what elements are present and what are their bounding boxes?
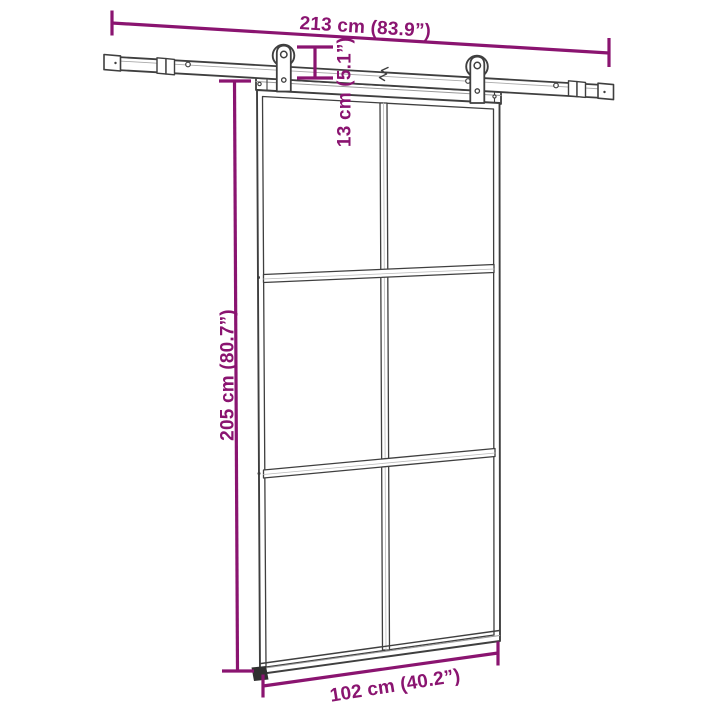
wheel-hub-bolt bbox=[281, 51, 287, 57]
hanger-drop-label: 13 cm (5.1”) bbox=[335, 37, 356, 147]
dimension-diagram: 213 cm (83.9”) 13 cm (5.1”) 205 cm (80.7… bbox=[0, 0, 720, 720]
rail-end-cap-right bbox=[598, 83, 614, 99]
rail-screw bbox=[186, 62, 191, 67]
stile-screw bbox=[257, 276, 260, 279]
stile-screw bbox=[258, 472, 261, 475]
door-outer-frame bbox=[257, 90, 500, 674]
rail-coupler-left bbox=[157, 58, 175, 75]
strap-bolt bbox=[282, 78, 286, 82]
strap-bolt bbox=[475, 89, 479, 93]
channel-bolt bbox=[493, 95, 496, 98]
channel-bolt bbox=[258, 82, 261, 85]
right-roller-hanger bbox=[466, 56, 488, 103]
rail-screw bbox=[554, 83, 559, 88]
door-height-label: 205 cm (80.7”) bbox=[218, 309, 239, 441]
wheel-hub-bolt bbox=[474, 62, 480, 68]
door bbox=[252, 78, 502, 681]
rail-length-label: 213 cm (83.9”) bbox=[299, 13, 432, 42]
floor-guide bbox=[252, 666, 269, 681]
left-roller-hanger bbox=[273, 45, 295, 92]
rail-end-cap-left bbox=[104, 55, 121, 72]
diagram-canvas: 213 cm (83.9”) 13 cm (5.1”) 205 cm (80.7… bbox=[0, 0, 720, 720]
rail-coupler-right bbox=[569, 81, 586, 98]
door-width-label: 102 cm (40.2”) bbox=[328, 665, 461, 706]
